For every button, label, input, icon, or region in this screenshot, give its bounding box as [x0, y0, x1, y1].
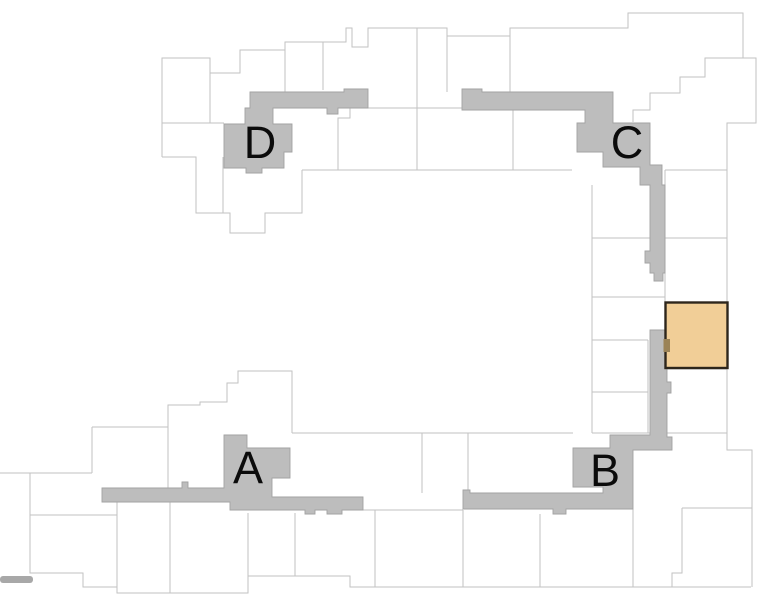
unit-outline [338, 108, 350, 170]
unit-outline [672, 508, 682, 587]
core-label-D: D [244, 117, 277, 168]
unit-outline [92, 371, 292, 433]
core-label-A: A [233, 442, 263, 493]
selected-unit-door-icon [664, 339, 671, 352]
selected-unit[interactable] [666, 303, 728, 369]
unit-outline [633, 58, 743, 122]
core-label-B: B [590, 445, 620, 496]
core-label-C: C [611, 117, 644, 168]
unit-outline [727, 238, 752, 587]
floorplan-canvas: ABCD [0, 0, 759, 594]
corridor-b [463, 330, 672, 514]
floorplan-svg: ABCD [0, 0, 759, 594]
site-edge-bar [0, 576, 33, 583]
